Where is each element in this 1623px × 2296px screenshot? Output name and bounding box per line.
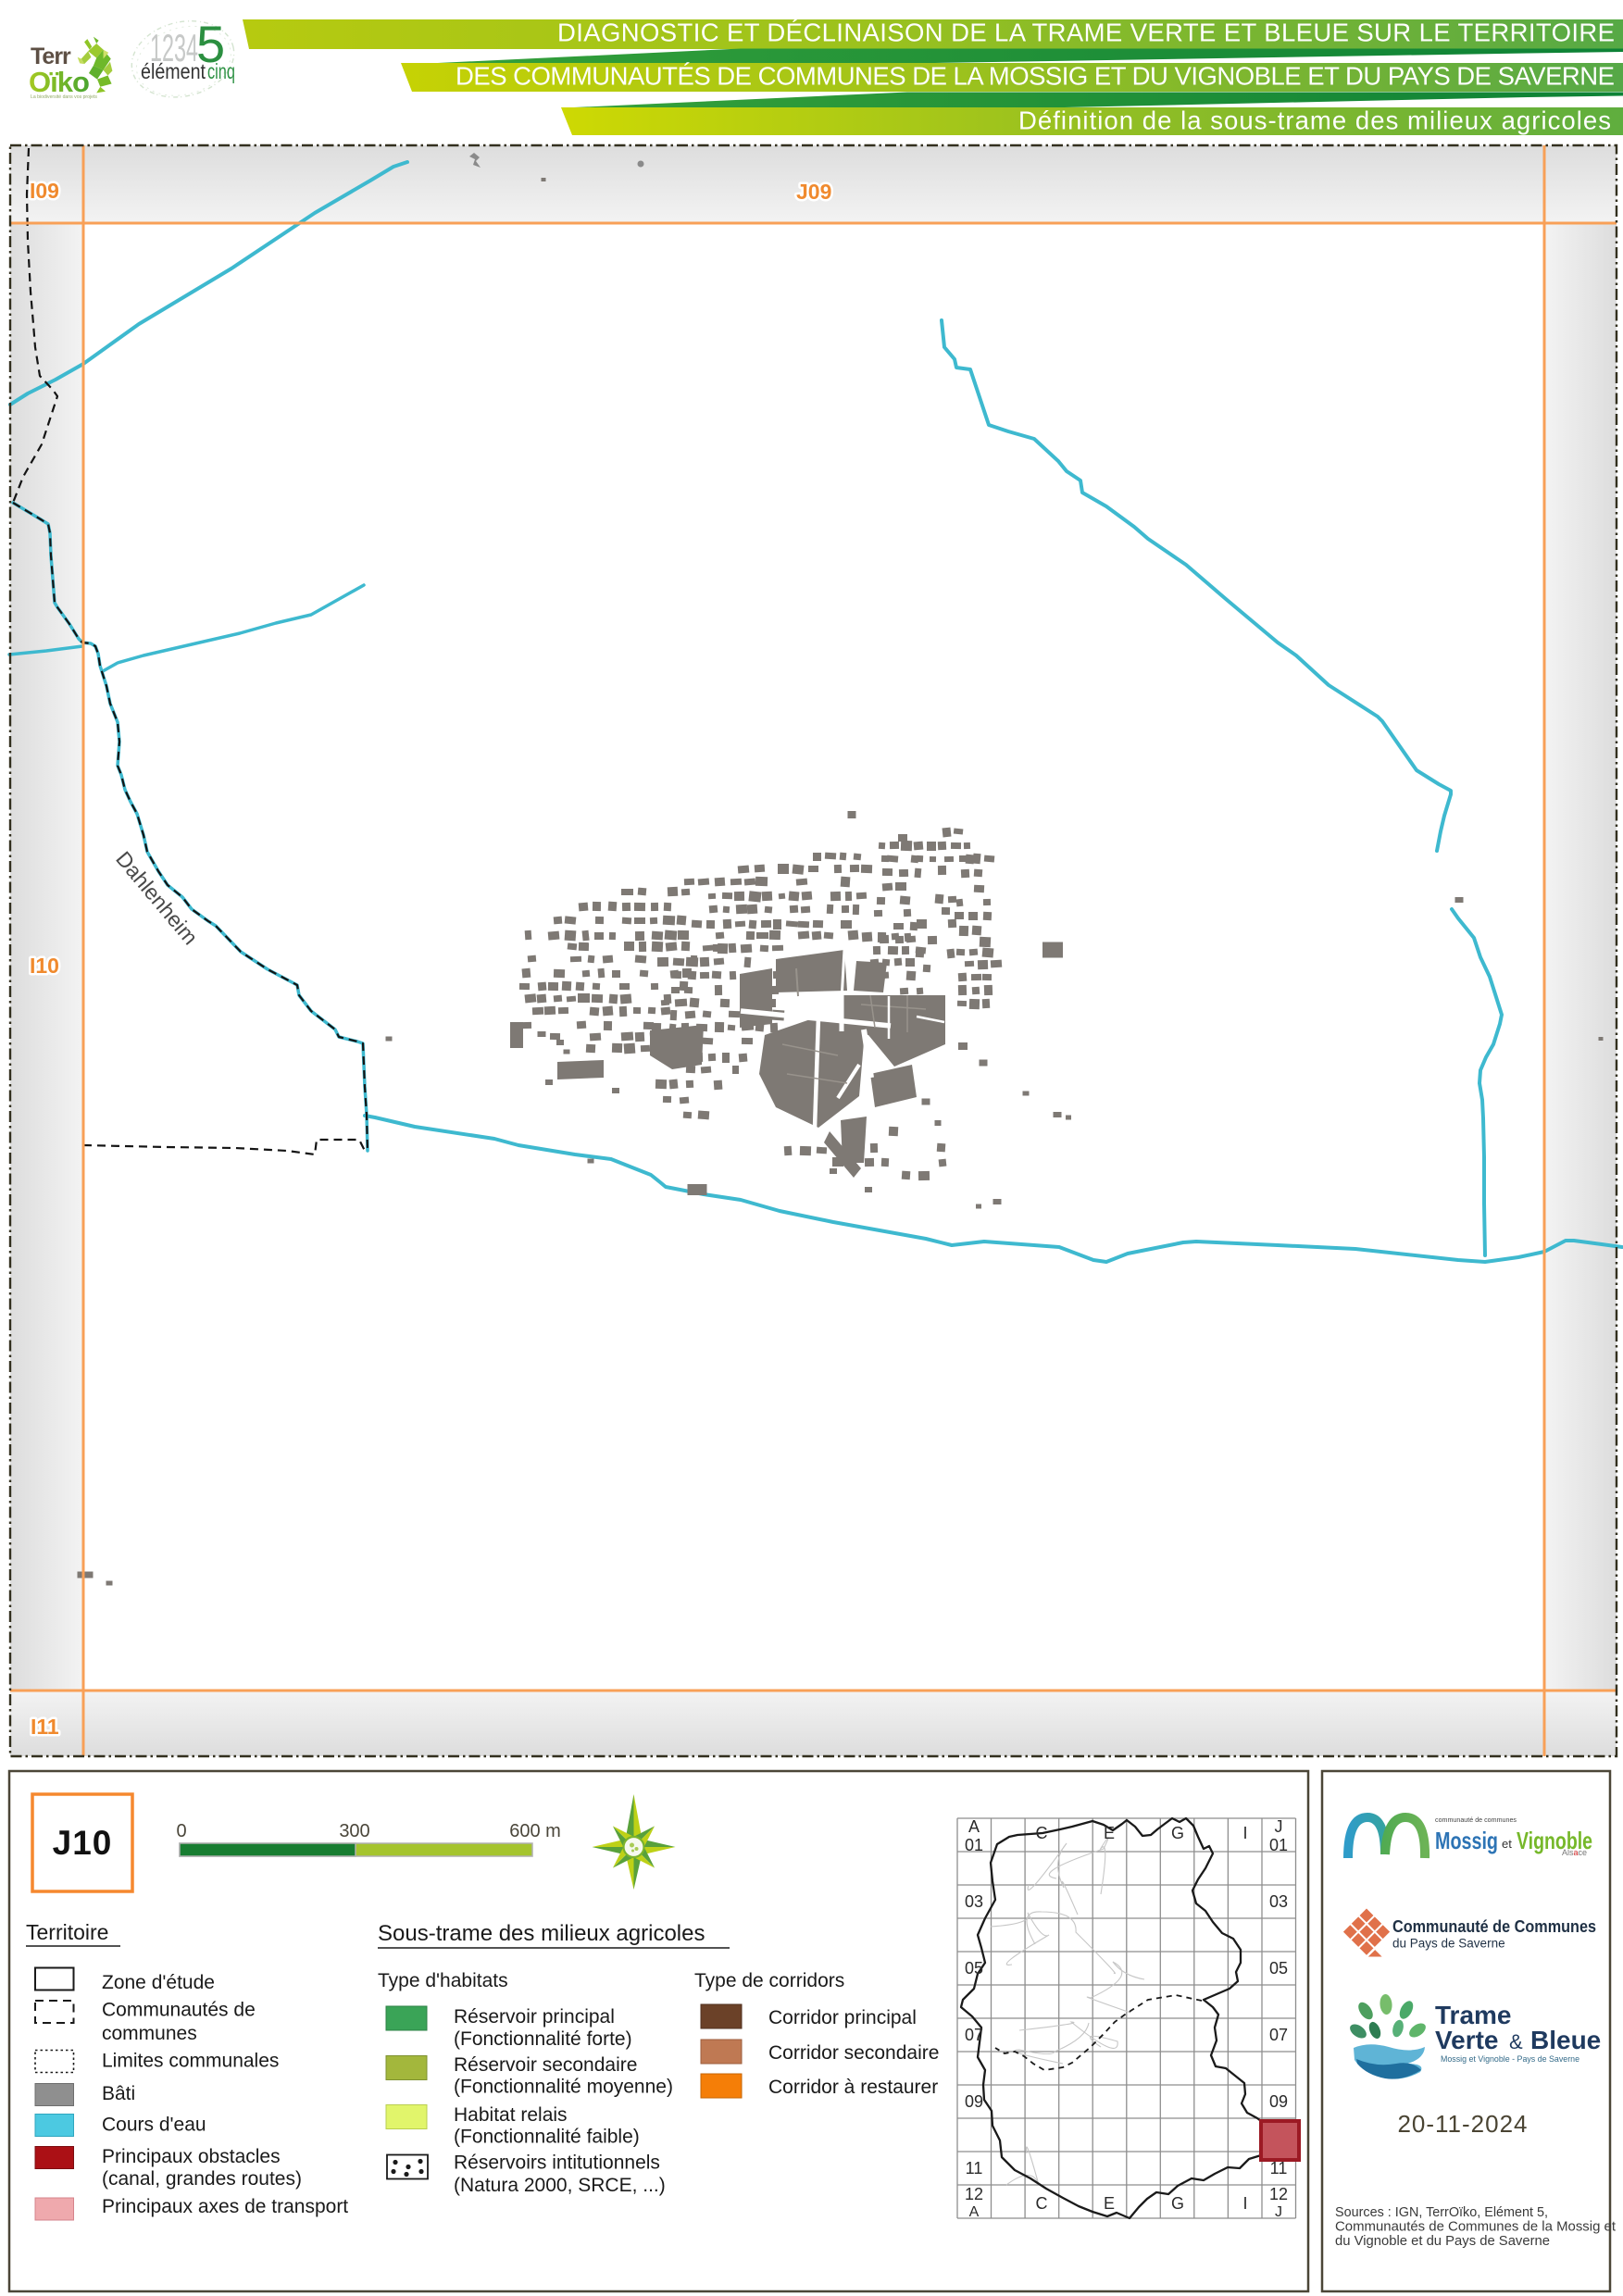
svg-text:12: 12 [965, 2185, 983, 2203]
svg-text:Communautés de: Communautés de [102, 2000, 256, 2021]
svg-text:I11: I11 [31, 1715, 59, 1739]
svg-text:0: 0 [176, 1821, 186, 1841]
svg-text:Sources : IGN, TerrOïko, Eléme: Sources : IGN, TerrOïko, Elément 5, [1335, 2204, 1548, 2220]
svg-text:(Fonctionnalité forte): (Fonctionnalité forte) [454, 2028, 632, 2050]
svg-text:Zone d'étude: Zone d'étude [102, 1972, 215, 1993]
svg-text:cinq: cinq [207, 59, 235, 83]
svg-text:Oïko: Oïko [29, 66, 89, 98]
svg-text:300: 300 [339, 1821, 369, 1841]
svg-text:600 m: 600 m [509, 1821, 561, 1841]
svg-text:E: E [1104, 2194, 1115, 2213]
svg-text:05: 05 [1269, 1959, 1288, 1978]
svg-text:Corridor secondaire: Corridor secondaire [768, 2042, 939, 2064]
svg-text:Bâti: Bâti [102, 2083, 135, 2104]
svg-text:Corridor à restaurer: Corridor à restaurer [768, 2077, 938, 2098]
svg-text:J: J [1275, 1817, 1283, 1836]
svg-text:A: A [968, 1817, 980, 1836]
svg-text:Limites communales: Limites communales [102, 2051, 279, 2072]
svg-text:C: C [1036, 1824, 1048, 1842]
svg-text:Communauté de Communes: Communauté de Communes [1392, 1916, 1596, 1936]
svg-text:et: et [1502, 1837, 1512, 1851]
svg-text:Mossig: Mossig [1435, 1827, 1498, 1854]
svg-text:(Natura 2000, SRCE, ...): (Natura 2000, SRCE, ...) [454, 2175, 666, 2196]
svg-text:(Fonctionnalité faible): (Fonctionnalité faible) [454, 2127, 640, 2148]
svg-text:Réservoirs intitutionnels: Réservoirs intitutionnels [454, 2152, 660, 2174]
svg-text:Alsace: Alsace [1562, 1848, 1587, 1857]
svg-text:Type de corridors: Type de corridors [694, 1970, 844, 1991]
svg-text:I10: I10 [30, 954, 59, 978]
svg-text:du Pays de Saverne: du Pays de Saverne [1392, 1937, 1505, 1951]
svg-text:09: 09 [1269, 2092, 1288, 2111]
svg-text:La biodiversité dans vos proje: La biodiversité dans vos projets [31, 94, 97, 100]
svg-text:Type d'habitats: Type d'habitats [378, 1970, 508, 1991]
svg-text:G: G [1171, 2194, 1184, 2213]
svg-text:DES COMMUNAUTÉS DE COMMUNES DE: DES COMMUNAUTÉS DE COMMUNES DE LA MOSSIG… [456, 62, 1615, 91]
svg-text:(canal, grandes routes): (canal, grandes routes) [102, 2168, 302, 2190]
svg-text:G: G [1171, 1824, 1184, 1842]
svg-text:du Vignoble et du Pays de Save: du Vignoble et du Pays de Saverne [1335, 2233, 1550, 2249]
svg-text:Principaux obstacles: Principaux obstacles [102, 2146, 281, 2167]
svg-text:Cours d'eau: Cours d'eau [102, 2115, 206, 2136]
svg-text:I09: I09 [30, 179, 59, 203]
svg-text:élément: élément [141, 59, 206, 83]
svg-text:Réservoir principal: Réservoir principal [454, 2006, 615, 2028]
svg-text:&: & [1509, 2030, 1523, 2053]
svg-text:Corridor principal: Corridor principal [768, 2007, 917, 2028]
svg-text:12: 12 [1269, 2185, 1288, 2203]
svg-text:A: A [969, 2204, 980, 2220]
svg-text:01: 01 [1269, 1836, 1288, 1854]
svg-text:Bleue: Bleue [1530, 2026, 1601, 2054]
svg-text:communes: communes [102, 2023, 197, 2044]
svg-text:C: C [1036, 2194, 1048, 2213]
svg-text:03: 03 [1269, 1892, 1288, 1911]
svg-text:01: 01 [965, 1836, 983, 1854]
svg-text:07: 07 [1269, 2026, 1288, 2044]
svg-text:07: 07 [965, 2026, 983, 2044]
svg-text:DIAGNOSTIC ET DÉCLINAISON DE L: DIAGNOSTIC ET DÉCLINAISON DE LA TRAME VE… [557, 19, 1615, 47]
svg-text:J09: J09 [796, 180, 831, 204]
svg-text:J: J [1275, 2204, 1282, 2220]
svg-text:Mossig et Vignoble - Pays de S: Mossig et Vignoble - Pays de Saverne [1441, 2054, 1579, 2065]
svg-text:communauté de communes: communauté de communes [1435, 1816, 1517, 1824]
svg-text:I: I [1242, 1824, 1247, 1842]
svg-text:Définition de la sous-trame de: Définition de la sous-trame des milieux … [1018, 106, 1611, 135]
svg-text:I: I [1242, 2194, 1247, 2213]
svg-text:Réservoir secondaire: Réservoir secondaire [454, 2054, 637, 2076]
svg-text:20-11-2024: 20-11-2024 [1397, 2110, 1528, 2138]
svg-text:Communautés de Communes de la: Communautés de Communes de la Mossig et [1335, 2219, 1617, 2235]
svg-text:Territoire: Territoire [26, 1920, 108, 1944]
svg-text:Verte: Verte [1435, 2026, 1499, 2054]
svg-text:Sous-trame des milieux agricol: Sous-trame des milieux agricoles [378, 1921, 705, 1946]
svg-text:11: 11 [966, 2159, 983, 2177]
svg-text:03: 03 [965, 1892, 983, 1911]
svg-text:Principaux axes de transport: Principaux axes de transport [102, 2196, 348, 2217]
svg-text:E: E [1104, 1824, 1115, 1842]
svg-text:09: 09 [965, 2092, 983, 2111]
svg-text:Habitat relais: Habitat relais [454, 2104, 568, 2126]
svg-text:(Fonctionnalité moyenne): (Fonctionnalité moyenne) [454, 2077, 673, 2098]
svg-text:05: 05 [965, 1959, 983, 1978]
svg-text:J10: J10 [53, 1824, 113, 1862]
